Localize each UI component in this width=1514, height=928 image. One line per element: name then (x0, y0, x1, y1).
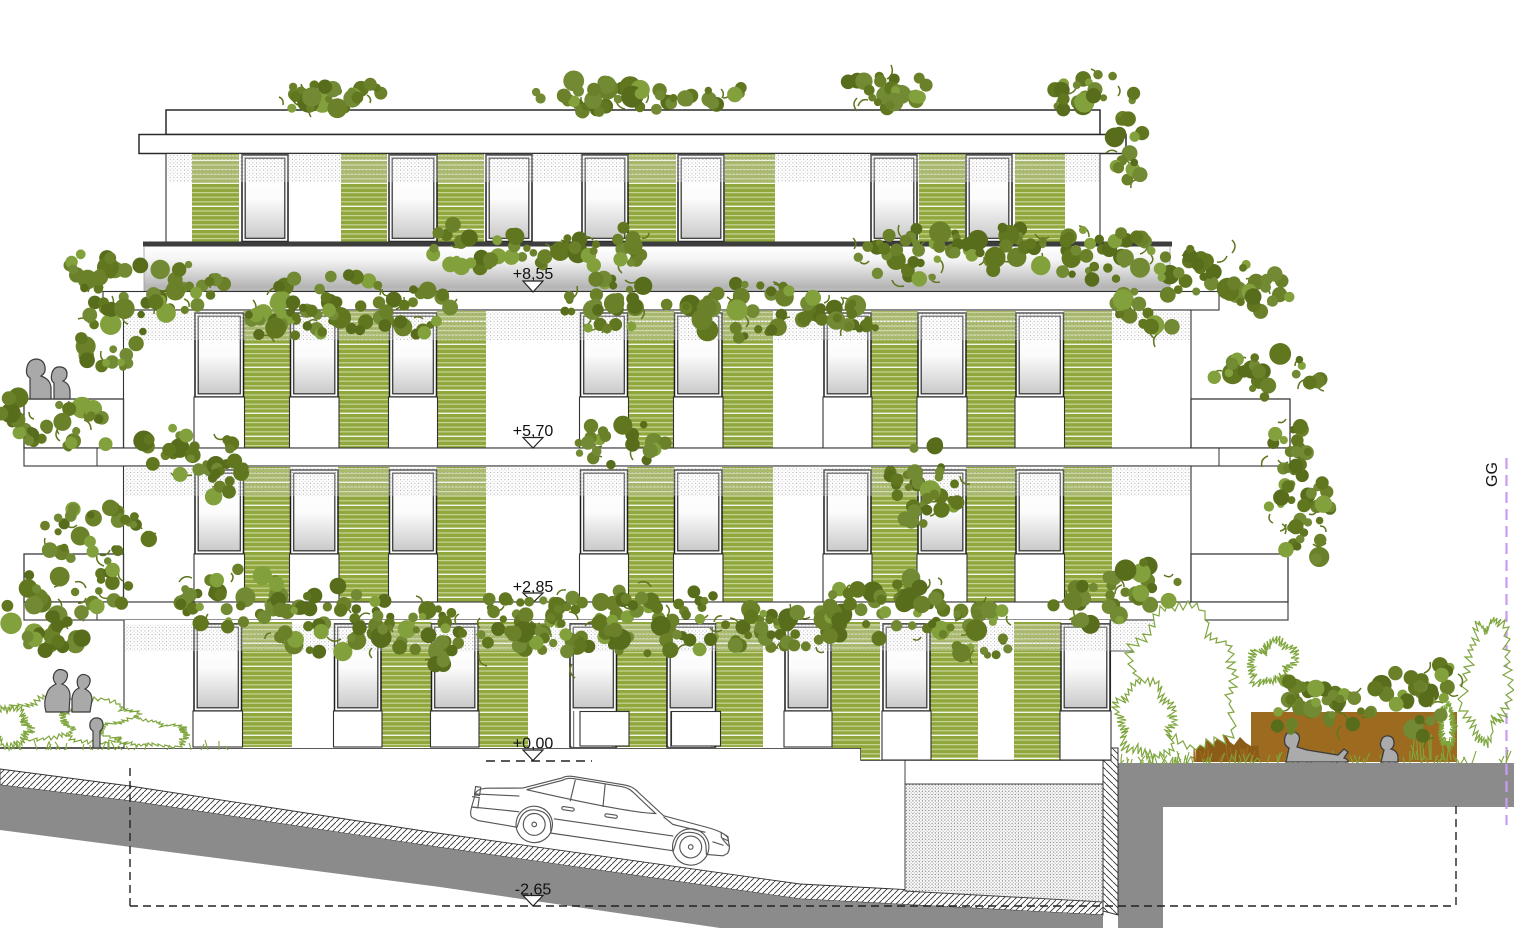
svg-text:GG: GG (1484, 462, 1501, 487)
